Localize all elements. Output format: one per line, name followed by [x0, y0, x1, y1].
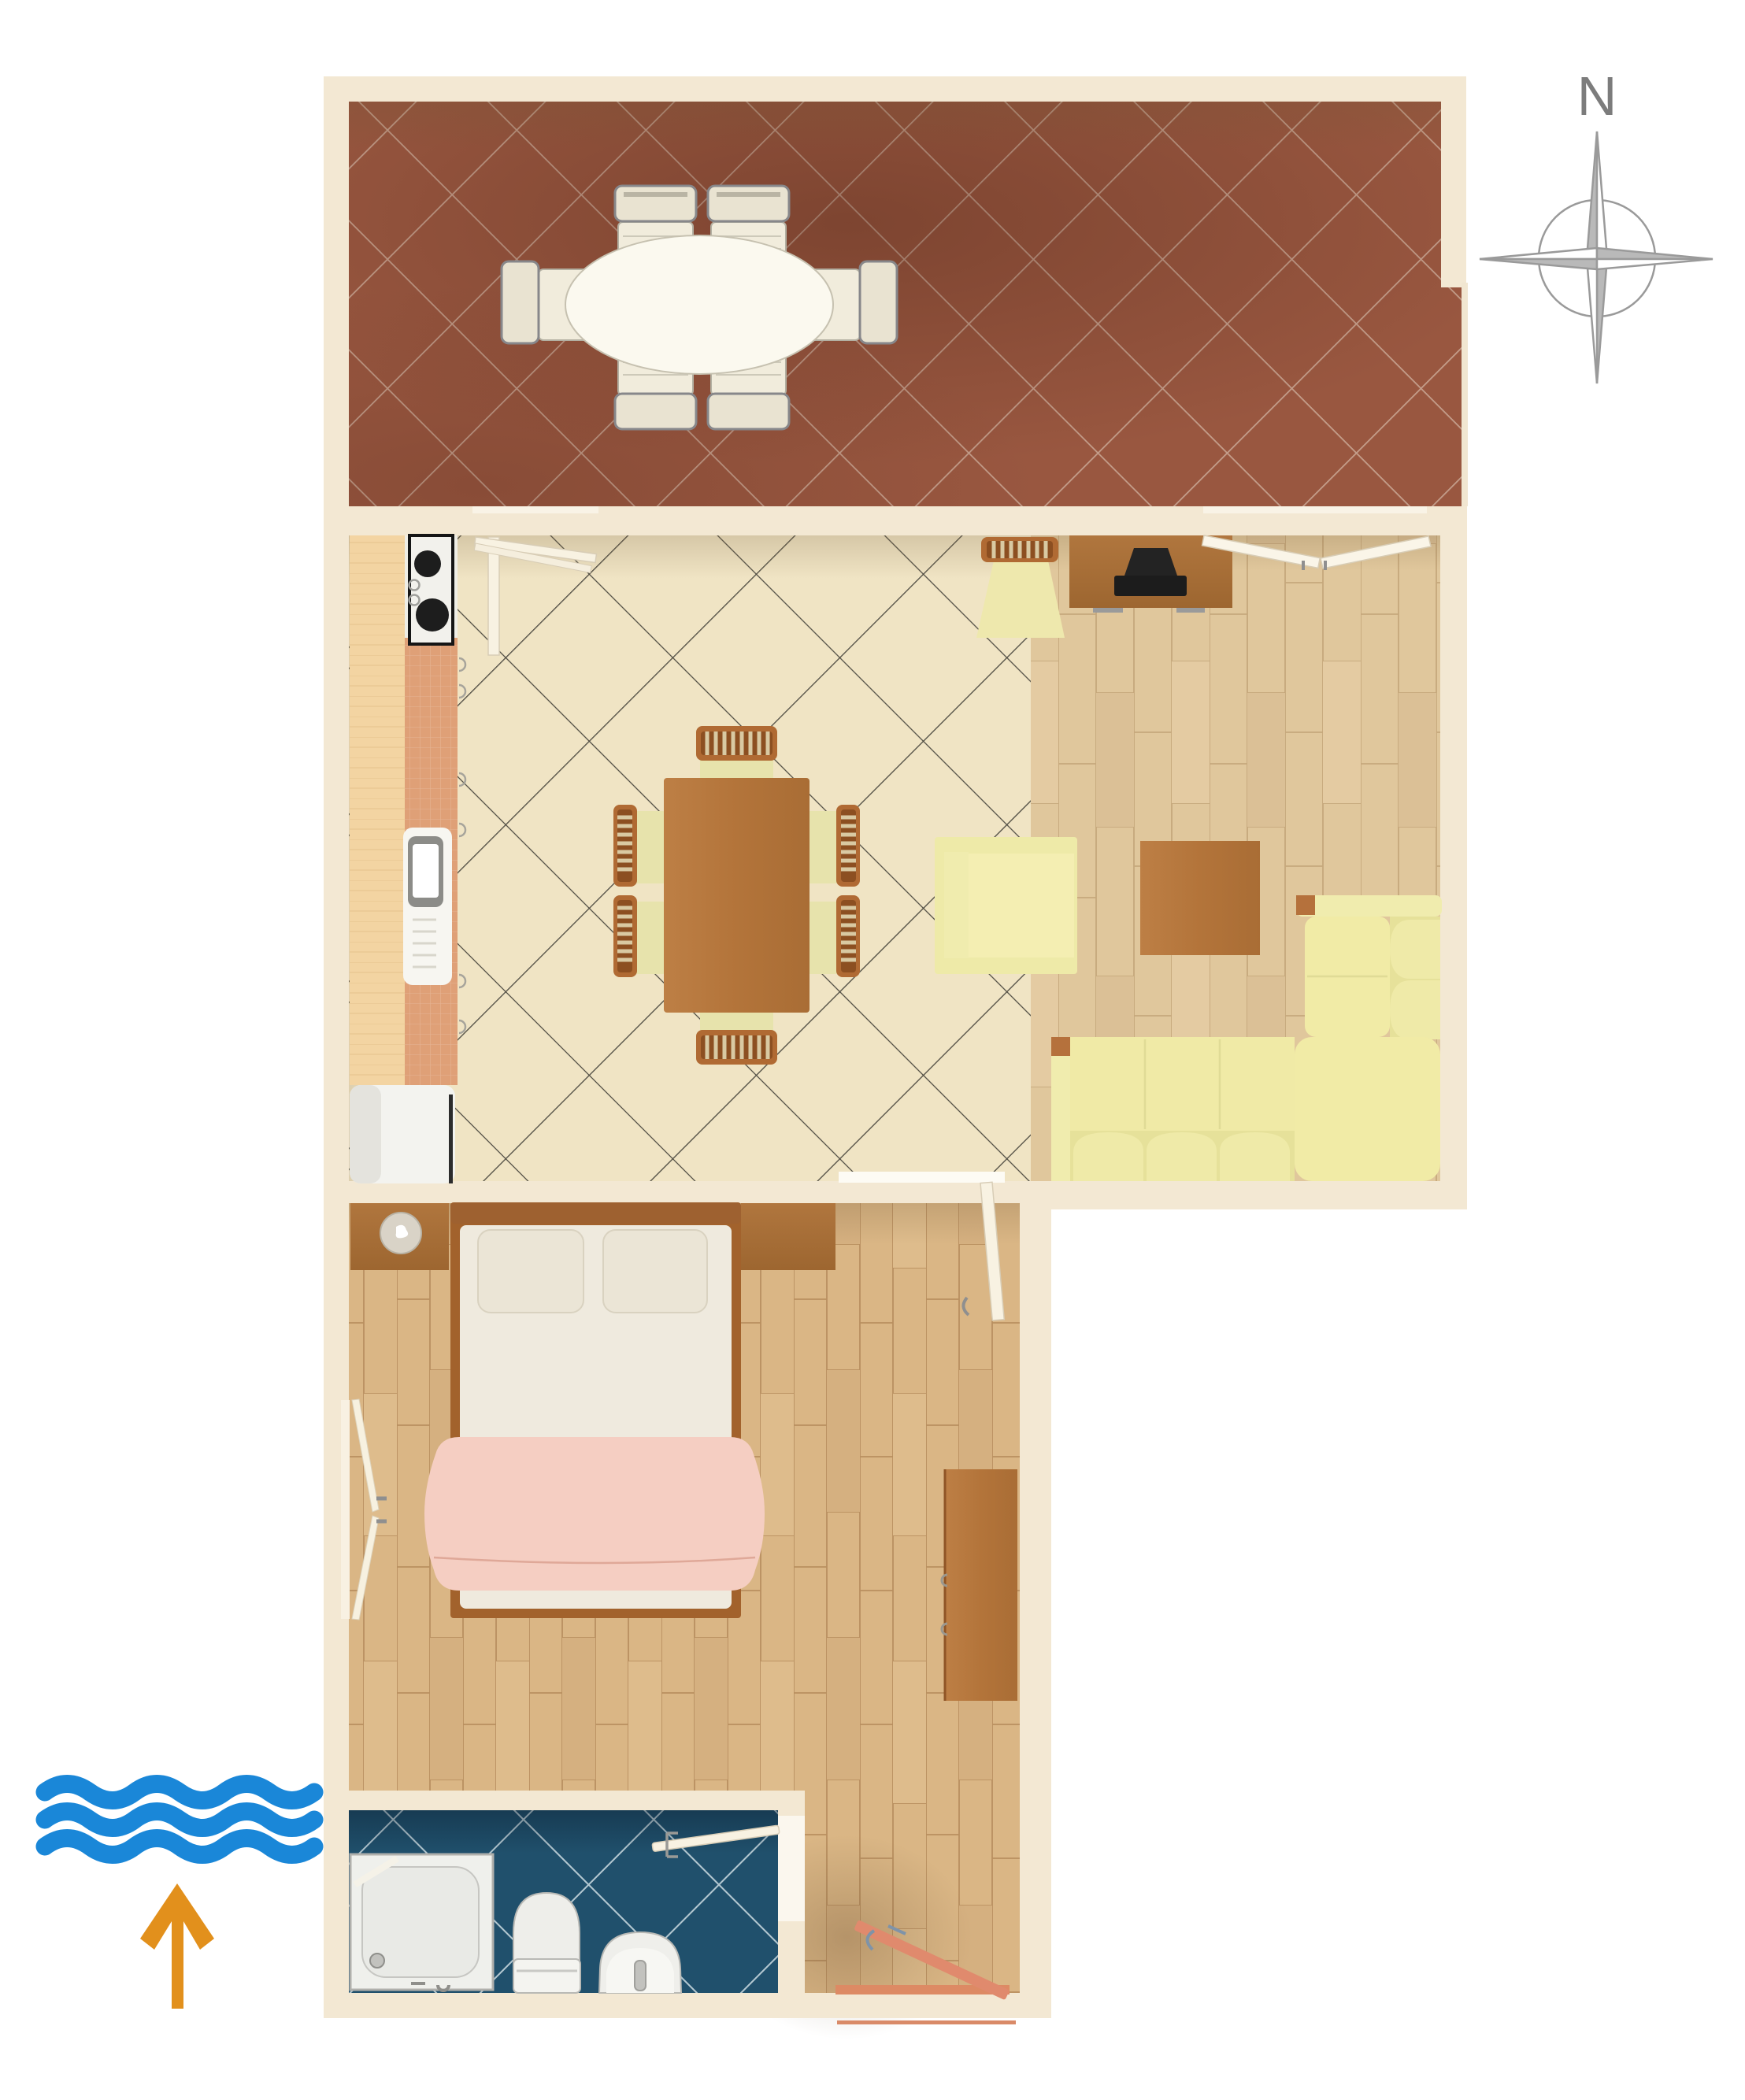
svg-text:N: N: [1577, 65, 1617, 127]
